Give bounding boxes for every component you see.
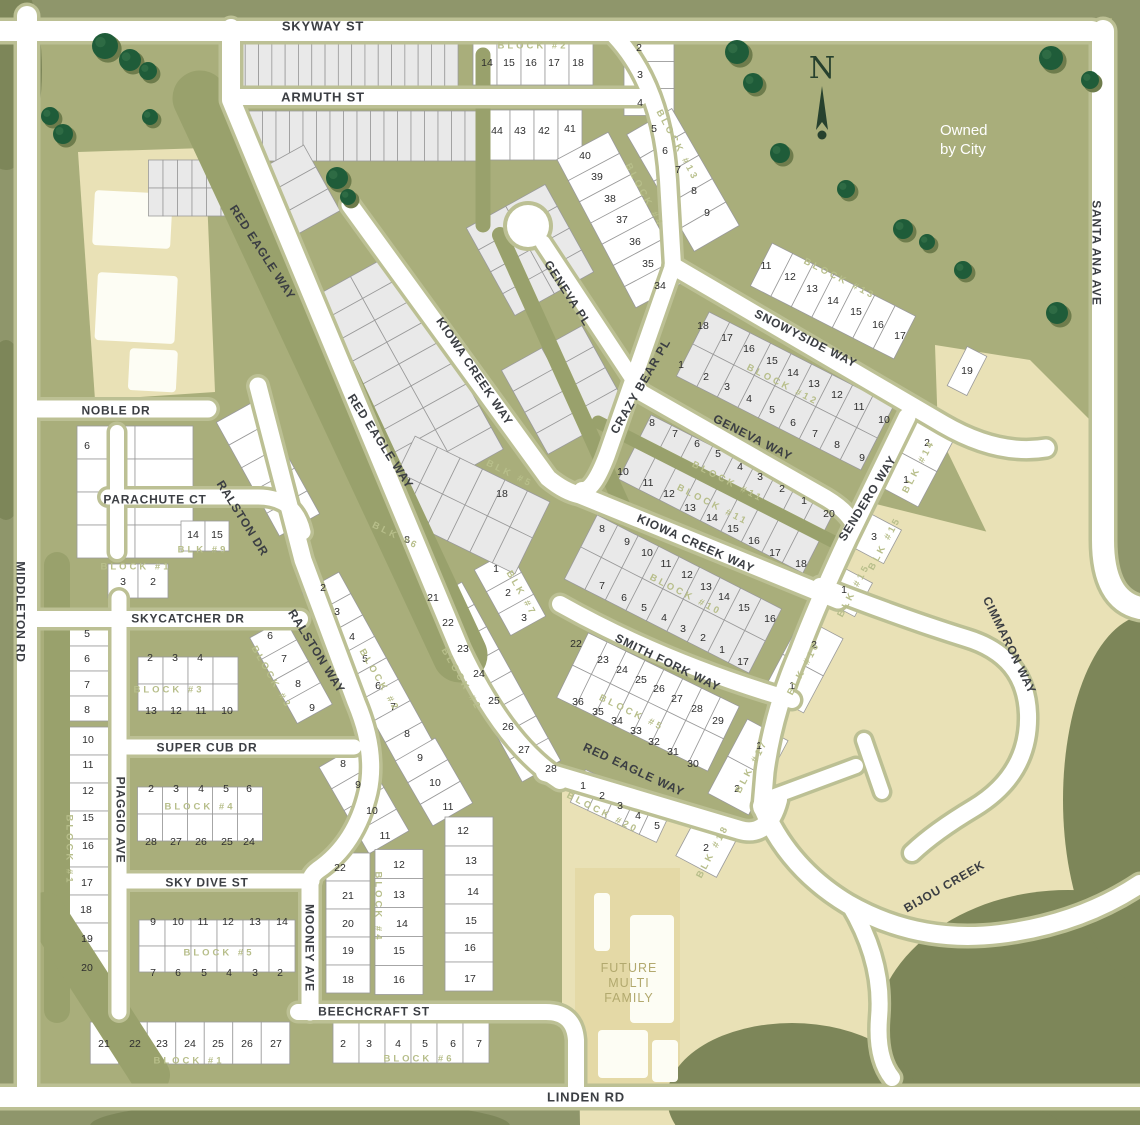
lot-number: 12 [681,569,693,581]
lot-number: 6 [662,145,668,157]
lot-number: 26 [502,721,514,733]
lot-number: 10 [617,466,629,478]
lot-number: 3 [173,783,179,795]
lot-number: 15 [82,812,94,824]
lot-number: 4 [637,97,643,109]
lot-number: 2 [320,582,326,594]
lot-number: 15 [850,306,862,318]
lot-number: 9 [417,752,423,764]
lot-number: 23 [597,654,609,666]
lot-number: 22 [442,617,454,629]
lot-number: 7 [672,428,678,440]
lot-number: 7 [675,164,681,176]
street-label-sky-dive-st: SKY DIVE ST [165,876,248,890]
lot-number: 44 [491,125,503,137]
lot-number: 6 [84,653,90,665]
lot-number: 14 [467,886,479,898]
lot-number: 33 [630,725,642,737]
building-footprint [94,272,177,344]
lot-number: 11 [661,558,672,570]
lot-number: 4 [349,631,355,643]
lot-number: 14 [396,918,408,930]
lot-number: 15 [211,529,223,541]
lot-number: 9 [704,207,710,219]
lot-number: 11 [380,830,391,842]
lot-number: 10 [82,734,94,746]
lot-number: 6 [246,783,252,795]
lot-number: 10 [429,777,441,789]
lot-number: 22 [129,1038,141,1050]
lot-number: 5 [223,783,229,795]
lot-number: 17 [894,330,906,342]
lot-number: 9 [859,452,865,464]
lot-number: 29 [712,715,724,727]
lot-number: 8 [649,417,655,429]
lot-number: 17 [81,877,93,889]
block-label: BLOCK #4 [165,802,236,813]
lot-number: 12 [663,488,675,500]
lot-number: 25 [635,674,647,686]
lot-number: 14 [276,916,288,928]
lot-number: 13 [808,378,820,390]
lot-number: 13 [145,705,157,717]
lot-number: 23 [457,643,469,655]
lot-number: 11 [854,401,865,413]
lot-number: 9 [150,916,156,928]
lot-number: 6 [267,630,273,642]
street-label-mooney-ave: MOONEY AVE [303,904,317,992]
lot-number: 6 [790,417,796,429]
lot-number: 5 [201,967,207,979]
lot-number: 35 [592,706,604,718]
lot-number: 41 [564,123,576,135]
lot-number: 4 [661,612,667,624]
lot-number: 12 [784,271,796,283]
building-footprint [128,348,178,392]
street-label-super-cub-dr: SUPER CUB DR [157,741,258,755]
lot-number: 13 [465,855,477,867]
lot-number: 24 [616,664,628,676]
lot-number: 6 [450,1038,456,1050]
lot-number: 7 [476,1038,482,1050]
lot-number: 5 [641,602,647,614]
lot-number: 27 [170,836,182,848]
lot-number: 8 [340,758,346,770]
lot-number: 12 [457,825,469,837]
north-arrow-base [818,131,827,140]
lot-number: 5 [654,820,660,832]
lot-number: 35 [642,258,654,270]
lot-number: 8 [691,185,697,197]
lot-number: 13 [684,502,696,514]
lot-number: 9 [624,536,630,548]
lot-number: 18 [795,558,807,570]
lot-number: 21 [342,890,354,902]
lot-number: 12 [393,859,405,871]
lot-number: 8 [834,439,840,451]
lot-number: 15 [766,355,778,367]
future-multi-family-label: MULTI [608,976,650,990]
lot-number: 7 [150,967,156,979]
lot-number: 5 [715,448,721,460]
lot-number: 2 [148,783,154,795]
building-footprint [652,1040,678,1082]
lot-number: 3 [334,606,340,618]
lot-number: 16 [748,535,760,547]
lot-number: 32 [648,736,660,748]
lot-number: 34 [654,280,666,292]
lot-number: 2 [599,790,605,802]
lot-number: 15 [727,523,739,535]
street-label-linden-rd: LINDEN RD [547,1090,625,1105]
lot-number: 3 [724,381,730,393]
lot-number: 13 [249,916,261,928]
lot-number: 27 [518,744,530,756]
lot-number: 4 [198,783,204,795]
lot-number: 17 [721,332,733,344]
lot-number: 26 [195,836,207,848]
map-canvas: 1415161718444342414039383736353423456789… [0,0,1140,1125]
lot-number: 27 [671,693,683,705]
lot-number: 2 [636,42,642,54]
block-label: BLOCK #2 [498,41,569,52]
lot-number: 2 [340,1038,346,1050]
lot-number: 7 [84,679,90,691]
lot-number: 13 [700,581,712,593]
lot-number: 11 [761,260,772,272]
lot-number: 10 [366,805,378,817]
lot-number: 2 [150,576,156,588]
lot-number: 15 [503,57,515,69]
lot-number: 16 [82,840,94,852]
lot-number: 28 [691,703,703,715]
lot-number: 25 [488,695,500,707]
lot-number: 2 [505,587,511,599]
lot-number: 4 [395,1038,401,1050]
lot-number: 25 [212,1038,224,1050]
lot-number: 4 [737,461,743,473]
lot-number: 22 [570,638,582,650]
lot-number: 18 [342,974,354,986]
lot-number: 3 [680,623,686,635]
street-label-beechcraft-st: BEECHCRAFT ST [318,1005,430,1019]
owned-by-city-label: by City [940,141,986,158]
lot-number: 6 [621,592,627,604]
lot-number: 12 [82,785,94,797]
lot-number: 21 [427,592,439,604]
lot-number: 36 [629,236,641,248]
lot-number: 4 [226,967,232,979]
lot-number: 14 [481,57,493,69]
lot-number: 3 [871,531,877,543]
lot-number: 2 [277,967,283,979]
lot-number: 1 [801,495,807,507]
lot-number: 15 [393,945,405,957]
lot-number: 28 [545,763,557,775]
lot-number: 39 [591,171,603,183]
lot-number: 17 [464,973,476,985]
lot-number: 20 [81,962,93,974]
lot-number: 3 [757,471,763,483]
lot-number: 10 [221,705,233,717]
lot-number: 24 [473,668,485,680]
lot-number: 4 [635,810,641,822]
lot-number: 36 [572,696,584,708]
lot-number: 20 [823,508,835,520]
lot-number: 6 [175,967,181,979]
lot-number: 28 [145,836,157,848]
lot-number: 3 [120,576,126,588]
lot-number: 5 [769,404,775,416]
lot-number: 9 [355,779,361,791]
lot-number: 1 [678,359,684,371]
lot-number: 12 [831,389,843,401]
owned-by-city-label: Owned [940,122,988,139]
block-label: BLOCK #6 [384,1054,455,1065]
street-label-armuth-st: ARMUTH ST [281,90,365,105]
lot-number: 27 [270,1038,282,1050]
lot-number: 26 [241,1038,253,1050]
lot-number: 1 [493,563,499,575]
lot-number: 18 [697,320,709,332]
lot-number: 1 [580,780,586,792]
lot-number: 9 [309,702,315,714]
lot-strip-blk4-sc [138,787,263,841]
lot-number: 18 [80,904,92,916]
block-label: BLOCK #4 [373,872,384,943]
north-arrow-label: N [809,51,835,86]
block-label: BLOCK #3 [134,685,205,696]
street-label-santa-ana-ave: SANTA ANA AVE [1090,200,1104,306]
lot-number: 23 [156,1038,168,1050]
lot-strip-sky-gray [232,41,458,87]
lot-number: 19 [961,365,973,377]
lot-number: 14 [187,529,199,541]
lot-number: 11 [443,801,454,813]
lot-number: 13 [806,283,818,295]
lot-number: 37 [616,214,628,226]
lot-number: 2 [779,483,785,495]
lot-number: 16 [872,319,884,331]
lot-number: 12 [222,916,234,928]
lot-number: 2 [700,632,706,644]
lot-number: 17 [769,547,781,559]
lot-number: 3 [617,800,623,812]
lot-number: 19 [342,945,354,957]
future-multi-family-label: FUTURE [601,961,658,975]
lot-number: 42 [538,125,550,137]
lot-number: 30 [687,758,699,770]
lot-number: 4 [197,652,203,664]
lot-number: 3 [172,652,178,664]
lot-number: 31 [667,746,679,758]
lot-number: 18 [496,488,508,500]
lot-number: 14 [718,591,730,603]
block-label: BLK #9 [178,545,229,556]
lot-number: 17 [548,57,560,69]
street-label-piaggio-ave: PIAGGIO AVE [114,777,128,864]
lot-number: 4 [746,393,752,405]
lot-number: 20 [342,918,354,930]
lot-number: 5 [422,1038,428,1050]
lot-number: 3 [252,967,258,979]
lot-strip-armuth-gray [236,111,479,161]
lot-number: 11 [83,759,94,771]
building-footprint [598,1030,648,1078]
plat-map: 1415161718444342414039383736353423456789… [0,0,1140,1125]
lot-strip-blk5-sd [139,920,295,972]
block-label: BLOCK #1 [154,1056,225,1067]
lot-number: 8 [404,728,410,740]
future-multi-family-label: FAMILY [604,991,654,1005]
block-label: BLOCK #1 [64,815,75,886]
lot-number: 15 [738,602,750,614]
lot-number: 24 [243,836,255,848]
lot-number: 8 [84,704,90,716]
street-label-skyway-st: SKYWAY ST [282,19,364,34]
lot-number: 7 [812,428,818,440]
lot-number: 24 [184,1038,196,1050]
lot-number: 13 [393,889,405,901]
lot-number: 3 [521,612,527,624]
lot-number: 19 [81,933,93,945]
lot-number: 22 [334,862,346,874]
lot-number: 11 [196,705,207,717]
lot-number: 2 [147,652,153,664]
street-label-parachute-ct: PARACHUTE CT [103,493,206,507]
lot-number: 26 [653,683,665,695]
lot-strip-mooney-e2 [445,817,493,991]
lot-number: 11 [643,477,654,489]
lot-number: 7 [281,653,287,665]
lot-number: 40 [579,150,591,162]
lot-number: 14 [827,295,839,307]
street-label-middleton-rd: MIDDLETON RD [14,561,28,662]
lot-number: 6 [694,438,700,450]
lot-number: 38 [604,193,616,205]
building-footprint [594,893,610,951]
lot-number: 11 [198,916,209,928]
lot-number: 1 [719,644,725,656]
lot-number: 43 [514,125,526,137]
lot-number: 16 [525,57,537,69]
lot-number: 10 [641,547,653,559]
lot-number: 18 [572,57,584,69]
block-label: BLOCK #5 [184,948,255,959]
lot-number: 34 [611,715,623,727]
lot-number: 8 [295,678,301,690]
lot-number: 14 [787,367,799,379]
lot-number: 7 [599,580,605,592]
lot-number: 10 [878,414,890,426]
lot-number: 3 [637,69,643,81]
lot-number: 2 [703,371,709,383]
lot-number: 5 [651,123,657,135]
lot-number: 25 [221,836,233,848]
lot-number: 14 [706,512,718,524]
lot-number: 16 [393,974,405,986]
cul-de-sac-bulb [507,205,549,247]
lot-number: 12 [170,705,182,717]
lot-number: 16 [764,613,776,625]
block-label: BLOCK #1 [101,562,172,573]
street-label-skycatcher-dr: SKYCATCHER DR [131,612,245,626]
lot-number: 21 [98,1038,110,1050]
lot-number: 16 [464,942,476,954]
lot-number: 17 [737,656,749,668]
lot-number: 15 [465,915,477,927]
street-label-noble-dr: NOBLE DR [81,404,150,418]
lot-number: 5 [84,628,90,640]
lot-number: 8 [599,523,605,535]
lot-number: 16 [743,343,755,355]
lot-number: 6 [84,440,90,452]
lot-number: 10 [172,916,184,928]
lot-number: 3 [366,1038,372,1050]
